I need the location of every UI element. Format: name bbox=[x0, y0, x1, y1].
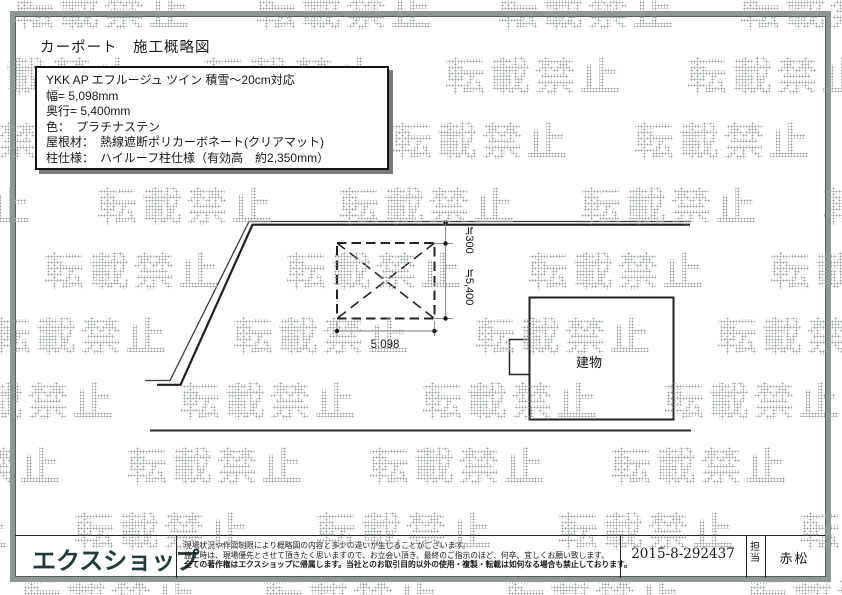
spec-line: 色： プラチナステン bbox=[46, 120, 387, 136]
staff-label: 担当 bbox=[747, 542, 763, 564]
disclaimer-block: 現場状況や作図制限により概略図の内容と多少の違いが生じることがございます。 施工… bbox=[184, 541, 614, 570]
exshop-logo: エクスショップ bbox=[32, 541, 176, 576]
order-number: 2015-8-292437 bbox=[620, 546, 746, 562]
width-dimension-label: 5,098 bbox=[371, 339, 400, 351]
spec-box: YKK AP エフルージュ ツイン 積雪～20cm対応 幅= 5,098mm 奥… bbox=[35, 66, 389, 170]
spec-line: 奥行= 5,400mm bbox=[46, 104, 387, 120]
spec-line: 幅= 5,098mm bbox=[46, 89, 387, 105]
disclaimer-line: 全ての著作権はエクスショップに帰属します。当社とのお取引目的以外の使用・複製・転… bbox=[184, 560, 601, 570]
road-boundary-line bbox=[145, 222, 690, 385]
depth-dimension: ≒300 ≒5,400 bbox=[434, 220, 475, 320]
spec-line: YKK AP エフルージュ ツイン 積雪～20cm対応 bbox=[46, 73, 387, 89]
spec-line: 柱仕様： ハイルーフ柱仕様（有効高 約2,350mm） bbox=[46, 151, 387, 167]
width-dimension: 5,098 bbox=[333, 321, 438, 351]
building-label: 建物 bbox=[576, 355, 602, 370]
offset-dimension-label: ≒300 bbox=[463, 226, 475, 254]
carport-footprint bbox=[337, 243, 435, 319]
depth-dimension-label: ≒5,400 bbox=[463, 269, 475, 306]
staff-name: 赤松 bbox=[765, 548, 824, 567]
spec-line: 屋根材： 熱線遮断ポリカーボネート(クリアマット) bbox=[46, 135, 387, 151]
disclaimer-line: 現場状況や作図制限により概略図の内容と多少の違いが生じることがございます。 bbox=[184, 541, 601, 551]
disclaimer-line: 施工時は、現場優先とさせて頂きたく思いますので、お立会い頂き、最終のご指示のほど… bbox=[184, 551, 601, 561]
footer-top-border bbox=[15, 535, 826, 536]
